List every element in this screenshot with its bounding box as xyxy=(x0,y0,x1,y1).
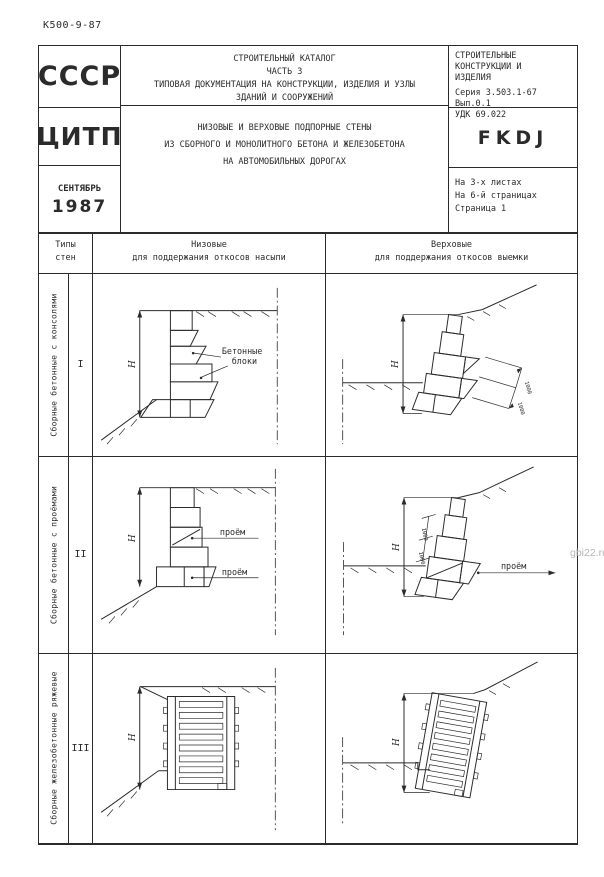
org-label: СССР xyxy=(38,61,121,92)
code-box: FKDJ xyxy=(449,108,577,168)
opening-label: проём xyxy=(220,527,245,537)
series-number: Серия 3.503.1-67 xyxy=(455,88,577,99)
header-table: СССР ЦИТП СЕНТЯБРЬ 1987 СТРОИТЕЛЬНЫЙ КАТ… xyxy=(38,45,578,233)
dim-1000-label: 1000 xyxy=(523,381,532,395)
dim-h-label: Н xyxy=(391,360,401,369)
col-header-text: стен xyxy=(39,252,92,265)
col-header-high: Верховые для поддержания откосов выемки xyxy=(326,234,577,274)
dim-1000-label: 1000 xyxy=(417,551,426,565)
dim-h-label: Н xyxy=(392,738,402,747)
date-box: СЕНТЯБРЬ 1987 xyxy=(39,166,120,232)
header-left-column: СССР ЦИТП СЕНТЯБРЬ 1987 xyxy=(39,46,121,232)
type1-numeral: I xyxy=(77,359,83,370)
col-header-text: Верховые xyxy=(326,239,577,252)
table-row-type2: Сборные бетонные с проёмами II Н xyxy=(39,457,577,654)
type2-high-cell: Н 1000 1000 xyxy=(326,457,577,654)
col-header-text: для поддержания откосов насыпи xyxy=(93,252,325,265)
table-row-type1: Сборные бетонные с консолями I Н xyxy=(39,274,577,457)
types-table: Типы стен Низовые для поддержания откосо… xyxy=(38,233,578,845)
series-heading-line: СТРОИТЕЛЬНЫЕ xyxy=(455,51,577,62)
catalog-page: К500-9-87 СССР ЦИТП СЕНТЯБРЬ 1987 СТРОИТ… xyxy=(0,0,604,877)
catalog-line: СТРОИТЕЛЬНЫЙ КАТАЛОГ xyxy=(121,53,448,66)
type1-label-cell: Сборные бетонные с консолями xyxy=(39,274,69,457)
type1-numeral-cell: I xyxy=(69,274,93,457)
drawing-type3-high: Н xyxy=(326,654,577,842)
type3-low-cell: Н xyxy=(93,654,326,843)
type2-low-cell: Н проём проём xyxy=(93,457,326,654)
col-header-text: для поддержания откосов выемки xyxy=(326,252,577,265)
type3-numeral-cell: III xyxy=(69,654,93,843)
issue-month: СЕНТЯБРЬ xyxy=(39,184,120,194)
dim-h-label: Н xyxy=(128,534,138,543)
dim-h-label: Н xyxy=(392,543,402,552)
type3-label: Сборные железобетонные ряжевые xyxy=(49,672,58,826)
dim-1000-label: 1000 xyxy=(516,401,525,415)
table-row-type3: Сборные железобетонные ряжевые III Н xyxy=(39,654,577,843)
type3-numeral: III xyxy=(71,743,89,754)
drawing-type1-high: Н 1000 1000 xyxy=(326,274,577,456)
title-line: НИЗОВЫЕ И ВЕРХОВЫЕ ПОДПОРНЫЕ СТЕНЫ xyxy=(121,120,448,137)
blocks-label-line2: блоки xyxy=(232,356,257,366)
header-right-column: СТРОИТЕЛЬНЫЕ КОНСТРУКЦИИ И ИЗДЕЛИЯ Серия… xyxy=(449,46,577,232)
col-header-text: Типы xyxy=(39,239,92,252)
watermark: gbi22.ru xyxy=(570,547,604,559)
doc-number: К500-9-87 xyxy=(43,20,102,31)
type1-low-cell: Н Бетонные блоки xyxy=(93,274,326,457)
series-box: СТРОИТЕЛЬНЫЕ КОНСТРУКЦИИ И ИЗДЕЛИЯ Серия… xyxy=(449,46,577,108)
blocks-label-line1: Бетонные xyxy=(222,346,262,356)
publisher-label: ЦИТП xyxy=(36,122,122,151)
issue-year: 1987 xyxy=(39,197,120,217)
opening-label: проём xyxy=(501,561,526,571)
type2-numeral-cell: II xyxy=(69,457,93,654)
col-header-text: Низовые xyxy=(93,239,325,252)
catalog-line: ТИПОВАЯ ДОКУМЕНТАЦИЯ НА КОНСТРУКЦИИ, ИЗД… xyxy=(121,79,448,92)
catalog-heading: СТРОИТЕЛЬНЫЙ КАТАЛОГ ЧАСТЬ 3 ТИПОВАЯ ДОК… xyxy=(121,46,448,106)
document-title: НИЗОВЫЕ И ВЕРХОВЫЕ ПОДПОРНЫЕ СТЕНЫ ИЗ СБ… xyxy=(121,106,448,232)
series-heading-line: КОНСТРУКЦИИ И xyxy=(455,62,577,73)
catalog-line: ЧАСТЬ 3 xyxy=(121,66,448,79)
pages-line: На 6-й страницах xyxy=(455,190,577,203)
type2-numeral: II xyxy=(74,549,86,560)
drawing-type3-low: Н xyxy=(93,654,324,842)
header-middle-column: СТРОИТЕЛЬНЫЙ КАТАЛОГ ЧАСТЬ 3 ТИПОВАЯ ДОК… xyxy=(121,46,449,232)
type2-label-cell: Сборные бетонные с проёмами xyxy=(39,457,69,654)
col-header-low: Низовые для поддержания откосов насыпи xyxy=(93,234,326,274)
opening-label: проём xyxy=(222,567,247,577)
title-line: НА АВТОМОБИЛЬНЫХ ДОРОГАХ xyxy=(121,154,448,171)
dim-h-label: Н xyxy=(128,733,138,742)
org-box: СССР xyxy=(39,46,120,108)
type3-label-cell: Сборные железобетонные ряжевые xyxy=(39,654,69,843)
page-number-line: Страница 1 xyxy=(455,203,577,216)
sheets-line: На 3-х листах xyxy=(455,177,577,190)
catalog-line: ЗДАНИЙ И СООРУЖЕНИЙ xyxy=(121,92,448,105)
type1-high-cell: Н 1000 1000 xyxy=(326,274,577,457)
pages-box: На 3-х листах На 6-й страницах Страница … xyxy=(449,168,577,232)
type1-label: Сборные бетонные с консолями xyxy=(49,293,58,436)
drawing-type1-low: Н Бетонные блоки xyxy=(93,274,324,456)
col-header-types: Типы стен xyxy=(39,234,93,274)
publisher-box: ЦИТП xyxy=(39,108,120,166)
classification-code: FKDJ xyxy=(478,127,549,149)
drawing-type2-high: Н 1000 1000 xyxy=(326,457,577,653)
title-line: ИЗ СБОРНОГО И МОНОЛИТНОГО БЕТОНА И ЖЕЛЕЗ… xyxy=(121,137,448,154)
type3-high-cell: Н xyxy=(326,654,577,843)
series-heading-line: ИЗДЕЛИЯ xyxy=(455,73,577,84)
type2-label: Сборные бетонные с проёмами xyxy=(49,486,58,624)
dim-h-label: Н xyxy=(128,360,138,369)
drawing-type2-low: Н проём проём xyxy=(93,457,324,653)
table-header-row: Типы стен Низовые для поддержания откосо… xyxy=(39,234,577,274)
